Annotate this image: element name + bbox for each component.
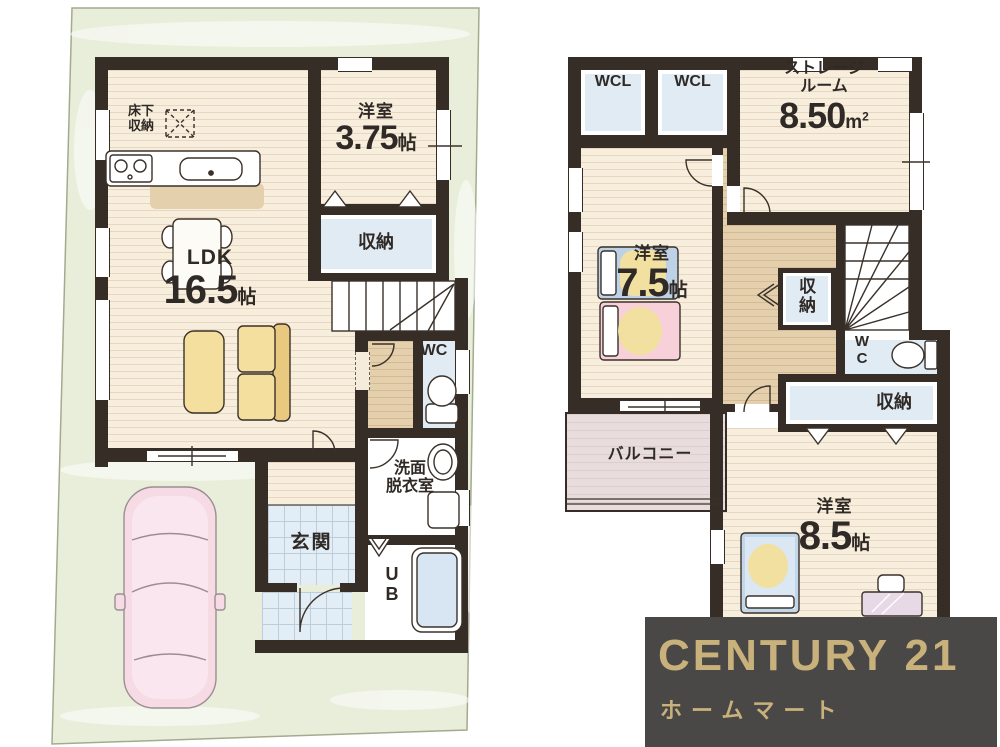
wcl-left-label: WCL <box>581 73 645 91</box>
closet1f-label: 収納 <box>316 232 436 252</box>
underfloor-storage-label: 床下 収納 <box>128 104 174 133</box>
storage-room-label: ストレージ ルーム 8.50m2 <box>735 60 913 134</box>
closet-band-label: 収納 <box>858 392 930 412</box>
washroom-label: 洗面 脱衣室 <box>365 460 455 496</box>
western-room-85-label: 洋室 8.5帖 <box>762 497 907 556</box>
entrance-label: 玄関 <box>268 532 355 553</box>
western-room-375-label: 洋室 3.75帖 <box>312 102 440 155</box>
western-room-75-label: 洋室 7.5帖 <box>585 244 719 303</box>
logo-brand-text: CENTURY 21 <box>658 631 959 681</box>
unit-bath-label: U B <box>380 565 404 605</box>
logo-store-text: ホームマート <box>660 693 845 725</box>
floorplan-canvas: 床下 収納 洋室 3.75帖 LDK 16.5帖 収納 WC 洗面 脱衣室 玄関… <box>0 0 1000 747</box>
wc2f-label: W C <box>850 334 874 367</box>
century21-logo: CENTURY 21 ホームマート <box>645 617 997 747</box>
closet-small-label: 収 納 <box>790 278 825 315</box>
wc1f-label: WC <box>413 342 455 360</box>
wcl-right-label: WCL <box>658 73 727 91</box>
balcony-label: バルコニー <box>575 446 725 464</box>
ldk-label: LDK 16.5帖 <box>130 246 290 310</box>
